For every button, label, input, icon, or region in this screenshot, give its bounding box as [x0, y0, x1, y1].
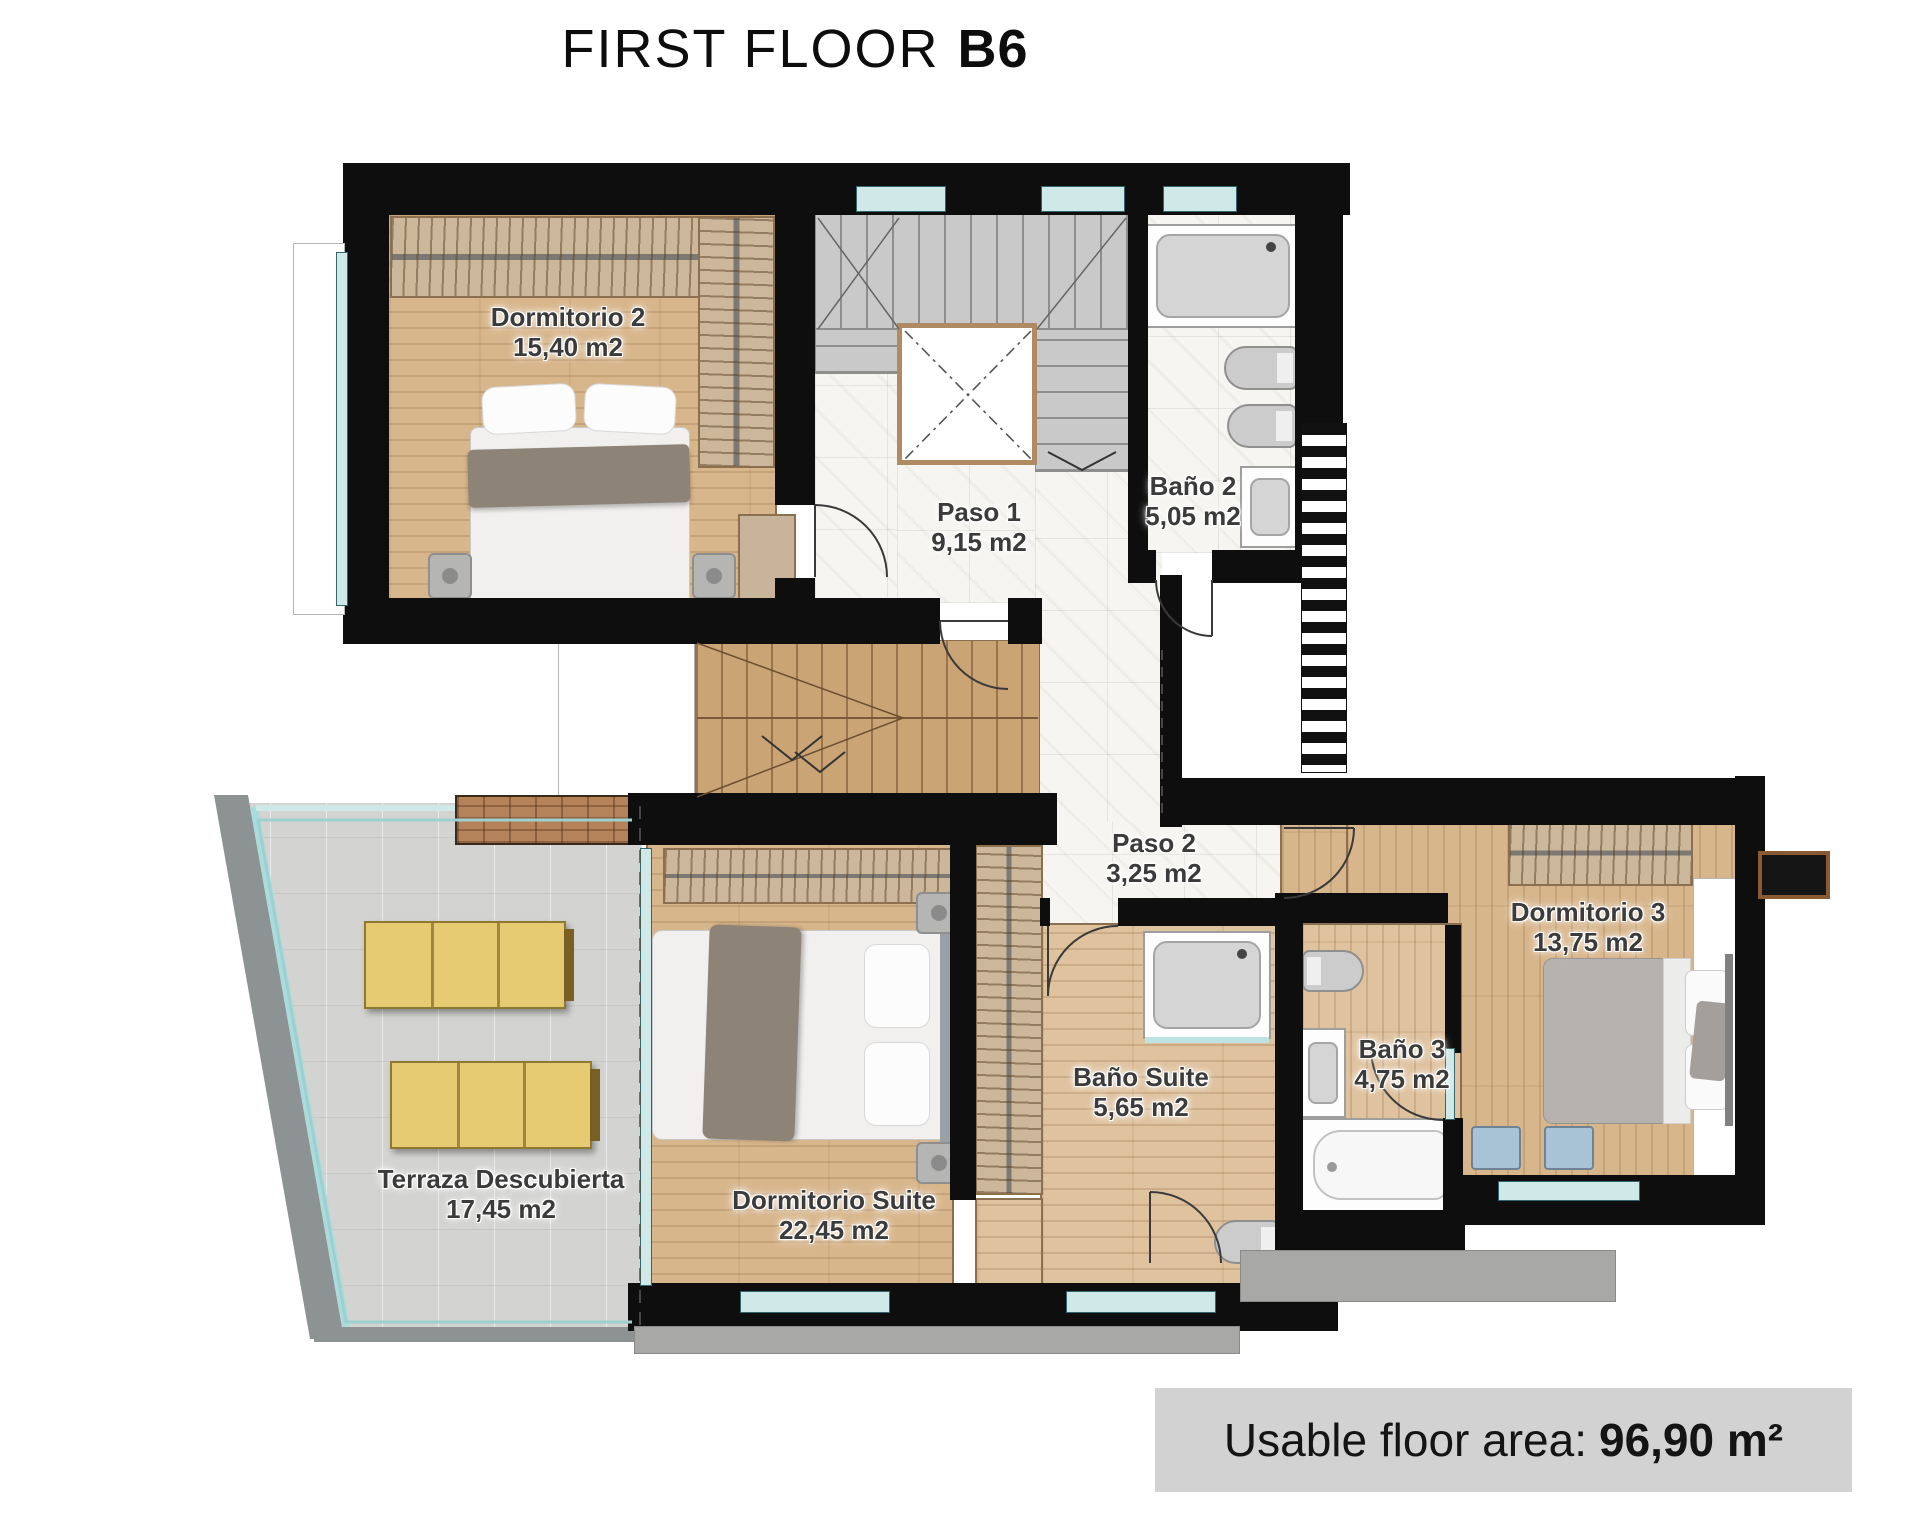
window-bano-2 [1163, 186, 1237, 212]
wall [343, 598, 940, 644]
upper-stair-left [815, 329, 899, 374]
lounger-headrest [564, 929, 574, 1001]
bidet-tap [1276, 411, 1292, 441]
glass-door-bano-3 [1445, 1048, 1455, 1120]
lounger-divider [523, 1063, 526, 1147]
toilet-bano-2 [1224, 346, 1298, 390]
closet-dormitorio-3 [1508, 820, 1693, 886]
wall [1118, 898, 1280, 926]
wall [628, 793, 1057, 845]
wall [1298, 893, 1448, 923]
floor-plan-page: FIRST FLOORB6 [0, 0, 1920, 1521]
exterior-step [634, 1326, 1240, 1354]
exterior-shading-strip [1301, 423, 1347, 773]
bed-pillow [583, 383, 677, 436]
stairwell-void [897, 323, 1037, 465]
bidet-bano-2 [1227, 404, 1297, 448]
bed-pillow [864, 1042, 930, 1126]
exterior-ledge [1758, 851, 1830, 899]
lamp-icon [706, 568, 722, 584]
sink-bano-3 [1298, 1028, 1346, 1118]
upper-stair-right [1035, 329, 1130, 472]
wall [628, 1283, 1338, 1331]
bed-dormitorio-3 [1543, 958, 1733, 1122]
usable-area-label: Usable floor area: [1224, 1413, 1587, 1467]
bed-dormitorio-suite [652, 930, 954, 1138]
wall [343, 163, 389, 637]
shower-glass [1145, 1037, 1269, 1043]
shower-bano-suite [1143, 931, 1271, 1039]
main-staircase [695, 640, 1040, 800]
bed-pillow [481, 383, 577, 436]
stair-void-left [558, 642, 695, 798]
terrace-area [214, 793, 646, 1342]
bathtub-bano-3 [1301, 1118, 1459, 1212]
bed-throw-blanket [702, 924, 801, 1141]
closet-dormitorio-suite [663, 848, 953, 904]
room-floor-paso-1-left [815, 370, 899, 602]
toilet-bano-3 [1302, 950, 1364, 992]
closet-dormitorio-2-side [698, 216, 775, 468]
bed-headboard [1725, 954, 1733, 1126]
shower-drain [1266, 242, 1276, 252]
wall [1128, 213, 1148, 553]
room-floor-paso-1-mid [897, 463, 1037, 603]
room-floor-bano-suite-lower [975, 1198, 1043, 1288]
wall [1040, 898, 1050, 926]
lounger-divider [497, 923, 500, 1007]
exterior-step [1240, 1250, 1616, 1302]
bed-throw-blanket [467, 444, 690, 508]
window-stair-hall-2 [1041, 186, 1125, 212]
floor-plan [0, 0, 1920, 1521]
wall [1008, 598, 1042, 644]
wall [1445, 925, 1461, 1053]
stone-wall [455, 795, 640, 845]
lamp-icon [442, 568, 458, 584]
sink-basin [1308, 1042, 1338, 1104]
sink-bano-2 [1240, 466, 1300, 548]
lamp-icon [931, 905, 947, 921]
shower-drain [1237, 949, 1247, 959]
wall [775, 163, 815, 505]
sun-lounger-2 [390, 1061, 592, 1149]
stool [1471, 1126, 1521, 1170]
wall [1180, 778, 1765, 825]
wall [950, 843, 976, 1200]
lounger-divider [431, 923, 434, 1007]
window-dormitorio-3 [1498, 1181, 1640, 1201]
window-stair-hall-1 [856, 186, 946, 212]
bed-duvet [1543, 958, 1677, 1124]
wall [1443, 1118, 1463, 1213]
shower-bano-2 [1146, 224, 1300, 328]
stool [1544, 1126, 1594, 1170]
bed-dormitorio-2 [470, 383, 688, 611]
sink-basin [1250, 478, 1290, 536]
glass-door-terrace [640, 848, 652, 1286]
closet-dormitorio-2 [390, 216, 720, 298]
wall [343, 163, 815, 215]
window-dormitorio-2 [336, 252, 348, 606]
wall [1128, 550, 1156, 583]
usable-area-box: Usable floor area: 96,90 m² [1155, 1388, 1852, 1492]
lounger-divider [457, 1063, 460, 1147]
nightstand [692, 553, 736, 599]
wall [1160, 575, 1182, 827]
wall [1735, 776, 1765, 1180]
lounger-headrest [590, 1069, 600, 1141]
lamp-icon [931, 1155, 947, 1171]
toilet-tank [1307, 957, 1321, 985]
toilet-tank [1277, 353, 1293, 383]
bed-pillow [864, 944, 930, 1028]
window-suite-south-2 [1066, 1291, 1216, 1313]
terrace-edge-bottom [314, 1327, 646, 1342]
sun-lounger-1 [364, 921, 566, 1009]
upper-stair-flight [813, 213, 1130, 329]
nightstand [428, 553, 472, 599]
usable-area-value: 96,90 m² [1599, 1413, 1783, 1467]
window-suite-south-1 [740, 1291, 890, 1313]
bathtub-drain [1327, 1162, 1337, 1172]
closet-vestidor-suite [975, 845, 1043, 1195]
